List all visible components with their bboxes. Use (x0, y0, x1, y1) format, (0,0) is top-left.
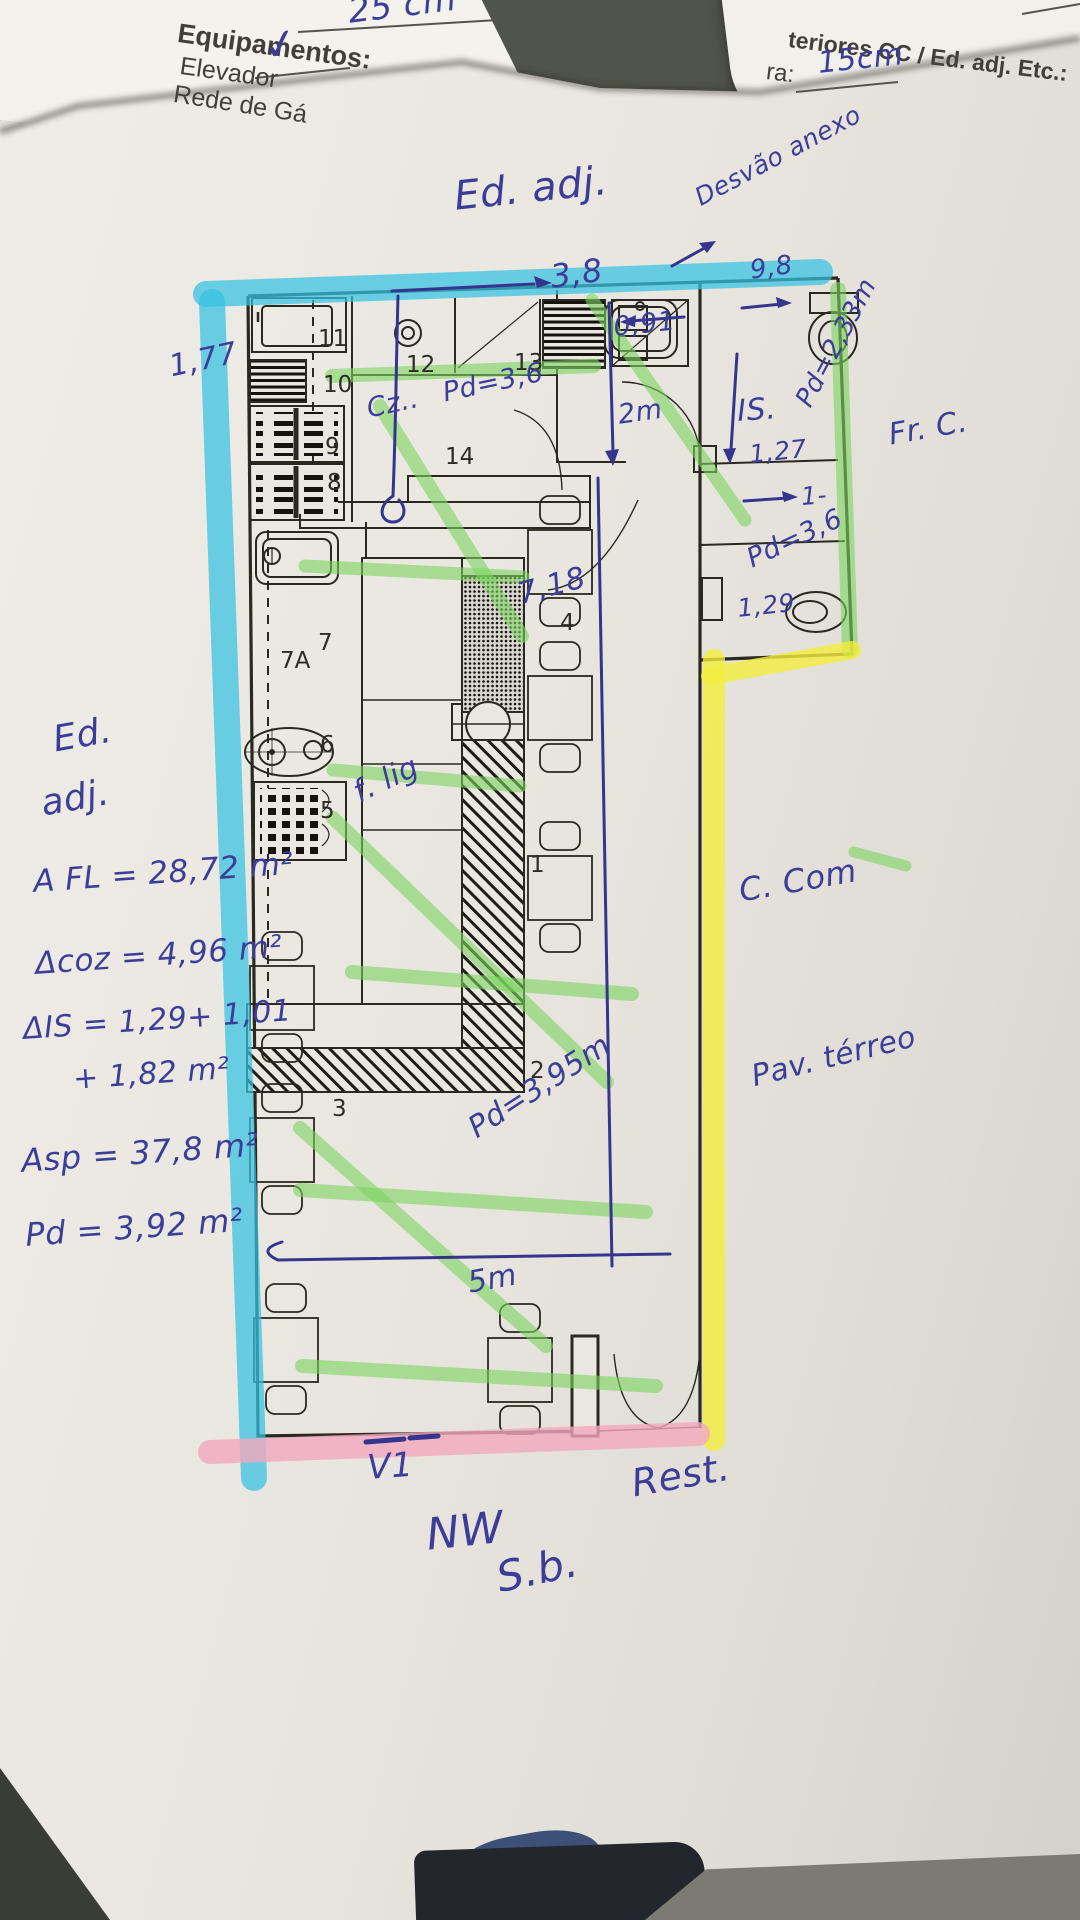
room-number-4: 4 (560, 610, 575, 636)
grill-10 (250, 360, 306, 402)
measure-sink: 0,91 (612, 306, 677, 343)
room-number-14: 14 (445, 444, 474, 470)
room-number-9: 9 (325, 434, 340, 460)
room-number-5: 5 (320, 798, 335, 824)
room-number-7a: 7A (280, 648, 310, 674)
room-number-8: 8 (327, 470, 342, 496)
room-number-3: 3 (332, 1096, 347, 1122)
measure-wc-width: 9,8 (748, 250, 795, 286)
room-number-1: 1 (530, 852, 545, 878)
measure-wc-depth: 1,27 (748, 434, 808, 469)
measure-hall-width: 1- (800, 480, 828, 511)
table-group (528, 642, 592, 772)
table-group (528, 822, 592, 952)
dining-tables (250, 496, 592, 1434)
annotation-nw: NW (424, 1502, 506, 1561)
room-number-6: 6 (320, 732, 335, 758)
hatched-bar-band (247, 1048, 524, 1092)
measure-hall: 2m (616, 394, 664, 431)
sink-7a (256, 532, 338, 584)
room-number-12: 12 (406, 352, 435, 378)
annotation-v1: V1 (366, 1445, 415, 1488)
room-number-10: 10 (323, 372, 352, 398)
adjacent-form-field-label: ra: (765, 58, 796, 89)
label-wc-room: IS. (736, 391, 777, 429)
photo-of-floorplan-document: Equipamentos: Elevador Rede de Gá ✓ 25 c… (0, 0, 1080, 1920)
measure-top-counter: 3,8 (548, 251, 605, 296)
room-number-11: 11 (318, 326, 347, 352)
measure-bidet: 1,29 (736, 588, 796, 623)
room-number-7: 7 (318, 630, 333, 656)
